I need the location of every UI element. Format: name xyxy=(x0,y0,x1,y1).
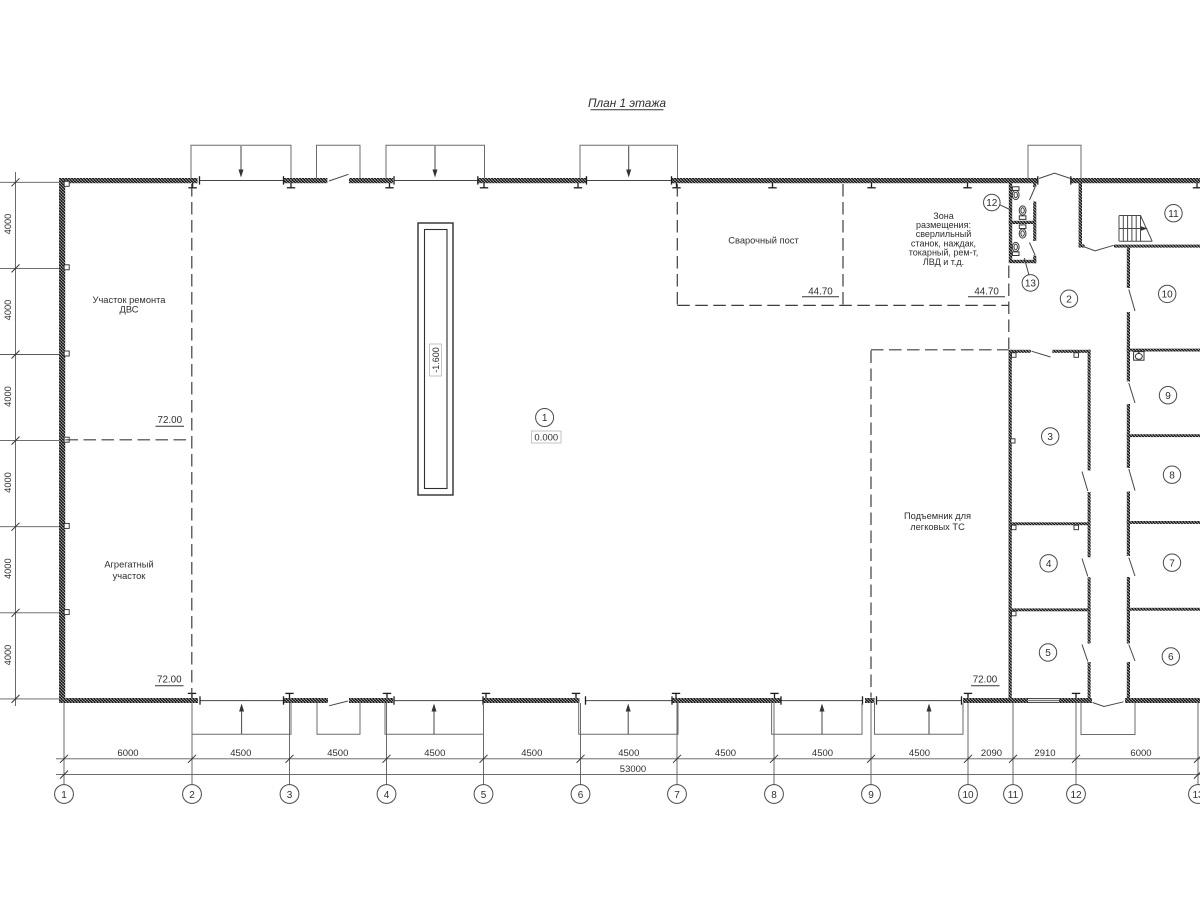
svg-text:72.00: 72.00 xyxy=(158,415,183,426)
svg-text:8: 8 xyxy=(1169,470,1175,481)
svg-text:-1.600: -1.600 xyxy=(431,347,441,373)
svg-text:13: 13 xyxy=(1192,790,1200,801)
svg-text:2: 2 xyxy=(1066,294,1072,305)
svg-text:4000: 4000 xyxy=(3,214,13,235)
svg-text:4: 4 xyxy=(1046,559,1052,570)
svg-text:10: 10 xyxy=(962,790,974,801)
svg-text:4500: 4500 xyxy=(715,748,736,759)
svg-text:6: 6 xyxy=(578,790,584,801)
svg-text:3: 3 xyxy=(1047,432,1053,443)
svg-text:3: 3 xyxy=(287,790,293,801)
svg-text:4000: 4000 xyxy=(3,645,13,666)
svg-text:5: 5 xyxy=(1045,648,1051,659)
svg-text:Агрегатный: Агрегатный xyxy=(104,560,153,570)
svg-text:4500: 4500 xyxy=(812,748,833,759)
svg-text:Участок ремонта: Участок ремонта xyxy=(93,295,167,305)
svg-text:4000: 4000 xyxy=(3,558,13,579)
svg-text:Подъемник для: Подъемник для xyxy=(904,511,971,521)
svg-text:4000: 4000 xyxy=(3,472,13,493)
svg-text:4500: 4500 xyxy=(618,748,639,759)
svg-text:План 1 этажа: План 1 этажа xyxy=(588,96,667,110)
svg-text:1: 1 xyxy=(542,413,548,424)
svg-text:легковых ТС: легковых ТС xyxy=(910,522,965,532)
svg-text:4500: 4500 xyxy=(909,748,930,759)
svg-text:9: 9 xyxy=(868,790,874,801)
svg-text:ДВС: ДВС xyxy=(120,305,139,315)
svg-text:7: 7 xyxy=(674,790,680,801)
svg-text:72.00: 72.00 xyxy=(157,675,182,686)
svg-text:8: 8 xyxy=(771,790,777,801)
svg-text:12: 12 xyxy=(1070,790,1082,801)
svg-text:10: 10 xyxy=(1162,290,1174,301)
svg-text:13: 13 xyxy=(1025,278,1037,289)
svg-text:11: 11 xyxy=(1008,790,1019,801)
svg-text:72.00: 72.00 xyxy=(973,675,998,686)
svg-text:44.70: 44.70 xyxy=(808,286,833,297)
svg-text:4500: 4500 xyxy=(230,748,251,759)
svg-text:9: 9 xyxy=(1165,391,1171,402)
svg-text:4500: 4500 xyxy=(327,748,348,759)
svg-text:Сварочный пост: Сварочный пост xyxy=(728,236,799,246)
svg-text:5: 5 xyxy=(481,790,487,801)
svg-text:7: 7 xyxy=(1169,558,1175,569)
svg-text:2090: 2090 xyxy=(981,748,1002,759)
svg-text:44.70: 44.70 xyxy=(974,286,999,297)
svg-text:4500: 4500 xyxy=(424,748,445,759)
svg-text:11: 11 xyxy=(1168,209,1179,220)
svg-text:6000: 6000 xyxy=(117,748,138,759)
svg-text:ЛВД и т.д.: ЛВД и т.д. xyxy=(923,257,964,267)
svg-text:4000: 4000 xyxy=(3,300,13,321)
svg-text:6: 6 xyxy=(1168,652,1174,663)
svg-text:4000: 4000 xyxy=(3,386,13,407)
svg-text:12: 12 xyxy=(986,198,998,209)
svg-text:участок: участок xyxy=(113,571,147,581)
svg-text:1: 1 xyxy=(61,790,67,801)
svg-text:2: 2 xyxy=(189,790,195,801)
svg-text:4: 4 xyxy=(384,790,390,801)
svg-text:4500: 4500 xyxy=(521,748,542,759)
svg-text:6000: 6000 xyxy=(1130,748,1151,759)
svg-text:53000: 53000 xyxy=(620,764,646,775)
svg-text:0.000: 0.000 xyxy=(534,433,558,444)
svg-text:2910: 2910 xyxy=(1034,748,1055,759)
